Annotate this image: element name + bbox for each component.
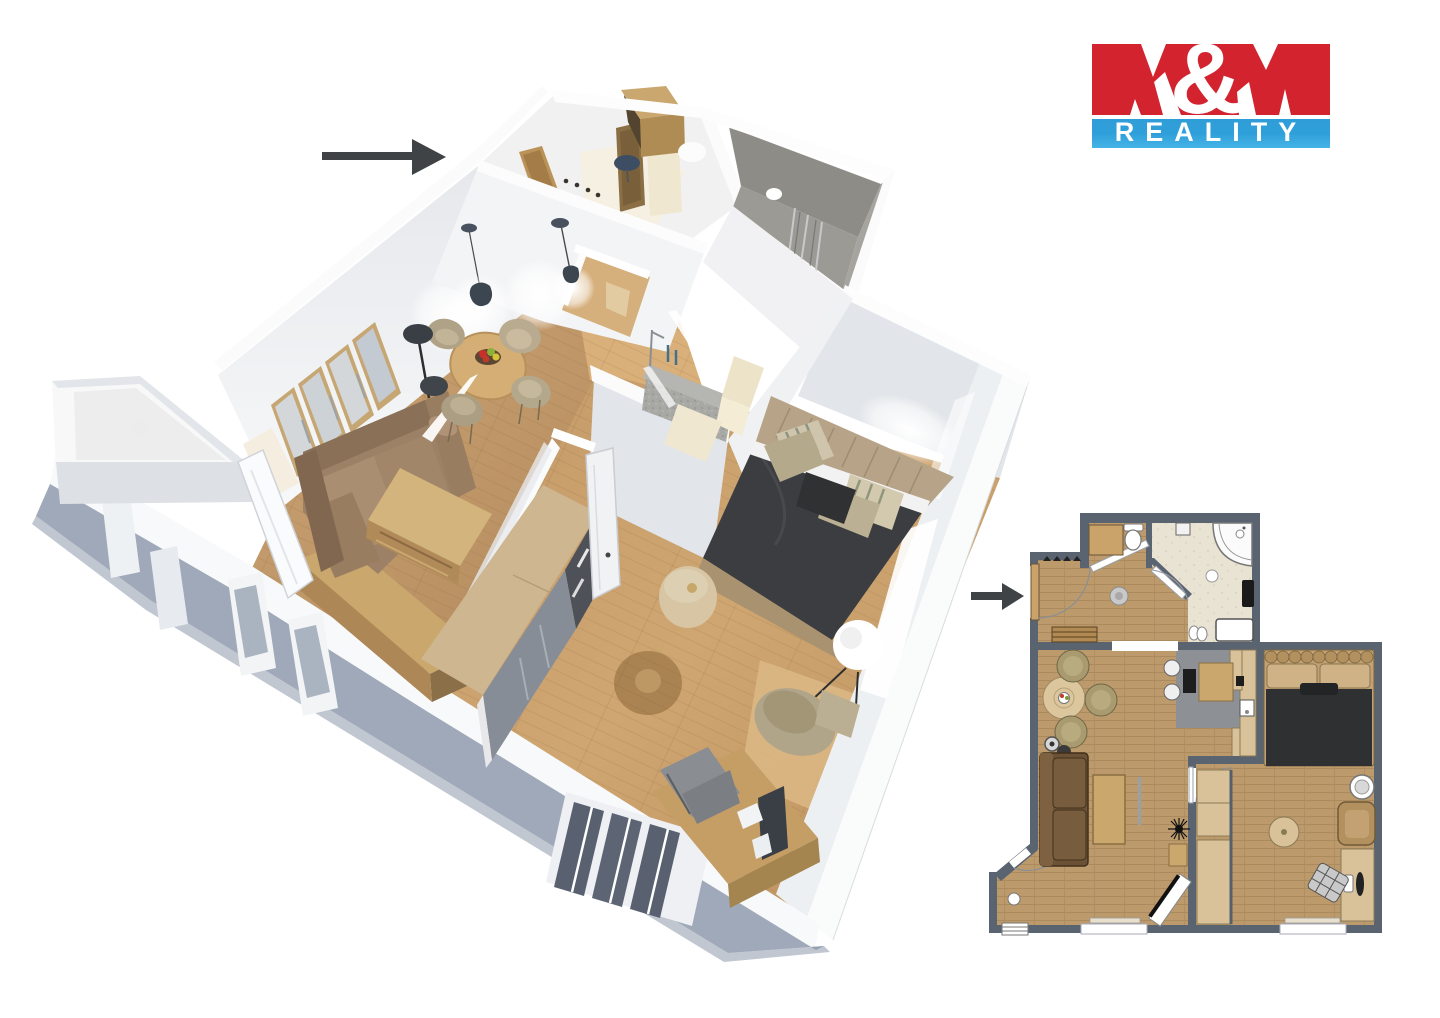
- svg-text:REALITY: REALITY: [1115, 117, 1308, 147]
